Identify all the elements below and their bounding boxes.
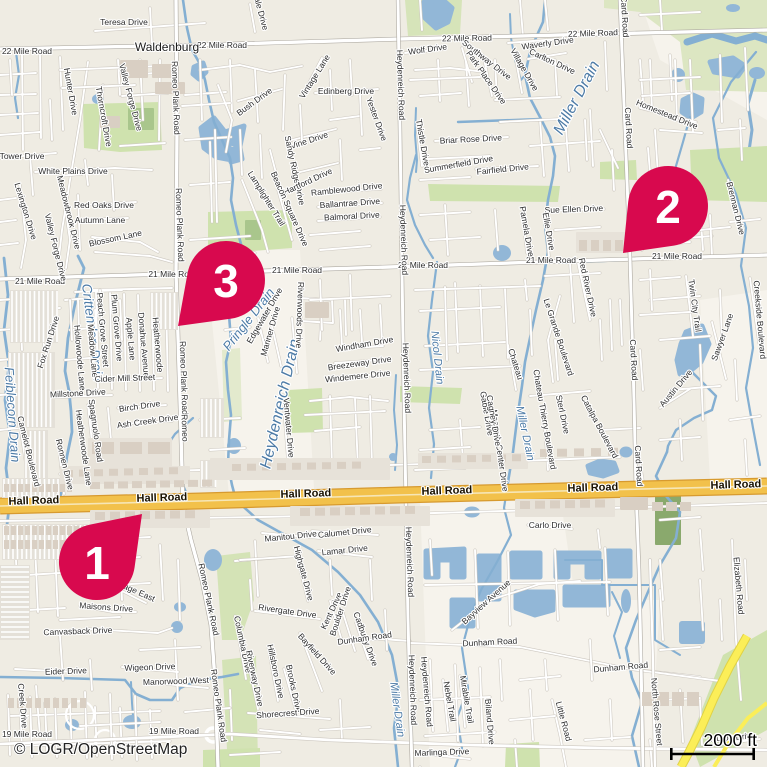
svg-text:Wigeon Drive: Wigeon Drive bbox=[124, 661, 176, 673]
svg-text:Hall Road: Hall Road bbox=[280, 487, 331, 501]
svg-text:21 Mile Road: 21 Mile Road bbox=[272, 265, 322, 275]
svg-text:3: 3 bbox=[213, 255, 239, 307]
svg-text:Carlo Drive: Carlo Drive bbox=[529, 520, 572, 530]
svg-text:22 Mile Road: 22 Mile Road bbox=[568, 27, 619, 39]
svg-text:Eider Drive: Eider Drive bbox=[45, 665, 88, 676]
svg-text:22 Mile Road: 22 Mile Road bbox=[2, 46, 52, 56]
svg-text:Hall Road: Hall Road bbox=[8, 494, 59, 508]
svg-text:1: 1 bbox=[84, 537, 110, 589]
svg-text:© LOGR/OpenStreetMap: © LOGR/OpenStreetMap bbox=[14, 741, 187, 758]
svg-text:Tower Drive: Tower Drive bbox=[0, 151, 45, 161]
svg-text:Teresa Drive: Teresa Drive bbox=[100, 17, 148, 27]
svg-text:Hall Road: Hall Road bbox=[710, 478, 761, 492]
svg-text:19 Mile Road: 19 Mile Road bbox=[149, 726, 199, 736]
svg-text:Red Oaks Drive: Red Oaks Drive bbox=[74, 200, 134, 210]
svg-text:Autumn Lane: Autumn Lane bbox=[75, 215, 126, 225]
svg-text:22 Mile Road: 22 Mile Road bbox=[197, 40, 247, 50]
svg-text:Waldenburg: Waldenburg bbox=[135, 40, 199, 54]
svg-text:2: 2 bbox=[655, 181, 681, 233]
svg-text:2000 ft: 2000 ft bbox=[703, 730, 757, 750]
svg-text:19 Mile Road: 19 Mile Road bbox=[2, 729, 52, 739]
svg-text:Hall Road: Hall Road bbox=[567, 481, 618, 495]
svg-text:Hall Road: Hall Road bbox=[136, 491, 187, 505]
svg-text:Marlinga Drive: Marlinga Drive bbox=[414, 746, 469, 758]
svg-text:21 Mile Road: 21 Mile Road bbox=[15, 276, 65, 286]
svg-text:Edinberg Drive: Edinberg Drive bbox=[318, 86, 374, 96]
svg-text:Romeo: Romeo bbox=[180, 414, 191, 442]
svg-text:Hall Road: Hall Road bbox=[421, 484, 472, 498]
svg-text:Cider Mill Street: Cider Mill Street bbox=[95, 372, 156, 384]
svg-text:21 Mile Road: 21 Mile Road bbox=[526, 255, 576, 265]
svg-text:White Plains Drive: White Plains Drive bbox=[38, 166, 108, 176]
svg-text:21 Mile Road: 21 Mile Road bbox=[652, 251, 702, 261]
svg-text:Sue Ellen Drive: Sue Ellen Drive bbox=[544, 203, 603, 215]
